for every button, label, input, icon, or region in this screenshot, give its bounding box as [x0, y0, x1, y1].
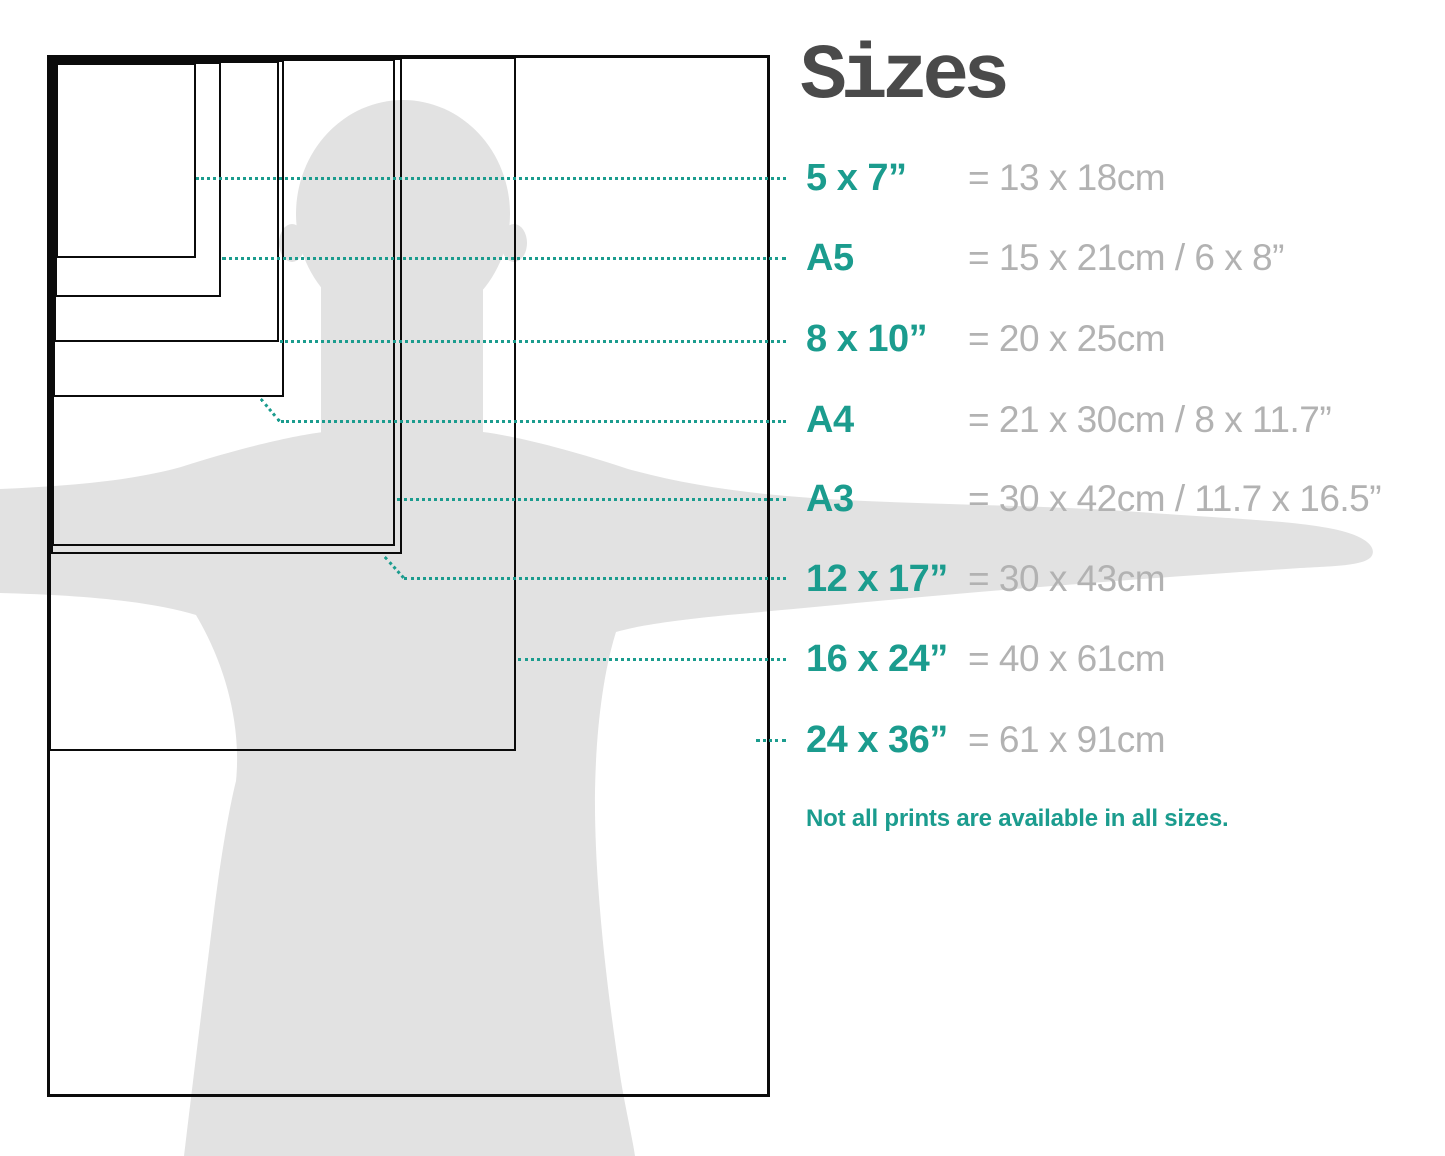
- size-value-A5: = 15 x 21cm / 6 x 8”: [968, 234, 1284, 282]
- size-value-12x17: = 30 x 43cm: [968, 555, 1165, 603]
- size-row-8x10: 8 x 10”= 20 x 25cm: [806, 315, 1165, 363]
- pointer-line-16x24: [518, 658, 786, 661]
- pointer-line-A3: [397, 498, 786, 501]
- size-label-A5: A5: [806, 234, 968, 282]
- pointer-line-A4-seg2: [281, 420, 786, 423]
- page-title: Sizes: [800, 38, 1004, 116]
- size-label-24x36: 24 x 36”: [806, 716, 968, 764]
- size-row-16x24: 16 x 24”= 40 x 61cm: [806, 635, 1165, 683]
- size-row-A5: A5= 15 x 21cm / 6 x 8”: [806, 234, 1284, 282]
- size-label-5x7: 5 x 7”: [806, 154, 968, 202]
- size-label-A4: A4: [806, 396, 968, 444]
- size-row-24x36: 24 x 36”= 61 x 91cm: [806, 716, 1165, 764]
- size-row-5x7: 5 x 7”= 13 x 18cm: [806, 154, 1165, 202]
- size-label-8x10: 8 x 10”: [806, 315, 968, 363]
- size-value-8x10: = 20 x 25cm: [968, 315, 1165, 363]
- pointer-line-5x7: [196, 177, 786, 180]
- size-label-16x24: 16 x 24”: [806, 635, 968, 683]
- size-row-A4: A4= 21 x 30cm / 8 x 11.7”: [806, 396, 1331, 444]
- pointer-line-12x17-seg2: [404, 577, 786, 580]
- size-label-A3: A3: [806, 475, 968, 523]
- size-value-5x7: = 13 x 18cm: [968, 154, 1165, 202]
- size-row-12x17: 12 x 17”= 30 x 43cm: [806, 555, 1165, 603]
- print-size-guide-infographic: Sizes 5 x 7”= 13 x 18cmA5= 15 x 21cm / 6…: [0, 0, 1445, 1156]
- pointer-line-24x36: [756, 739, 786, 742]
- size-value-A3: = 30 x 42cm / 11.7 x 16.5”: [968, 475, 1381, 523]
- size-label-12x17: 12 x 17”: [806, 555, 968, 603]
- size-row-A3: A3= 30 x 42cm / 11.7 x 16.5”: [806, 475, 1381, 523]
- frame-5x7: [56, 63, 196, 258]
- size-value-16x24: = 40 x 61cm: [968, 635, 1165, 683]
- pointer-line-A5: [222, 257, 786, 260]
- size-value-24x36: = 61 x 91cm: [968, 716, 1165, 764]
- size-value-A4: = 21 x 30cm / 8 x 11.7”: [968, 396, 1331, 444]
- availability-note: Not all prints are available in all size…: [806, 805, 1228, 833]
- pointer-line-8x10: [280, 340, 786, 343]
